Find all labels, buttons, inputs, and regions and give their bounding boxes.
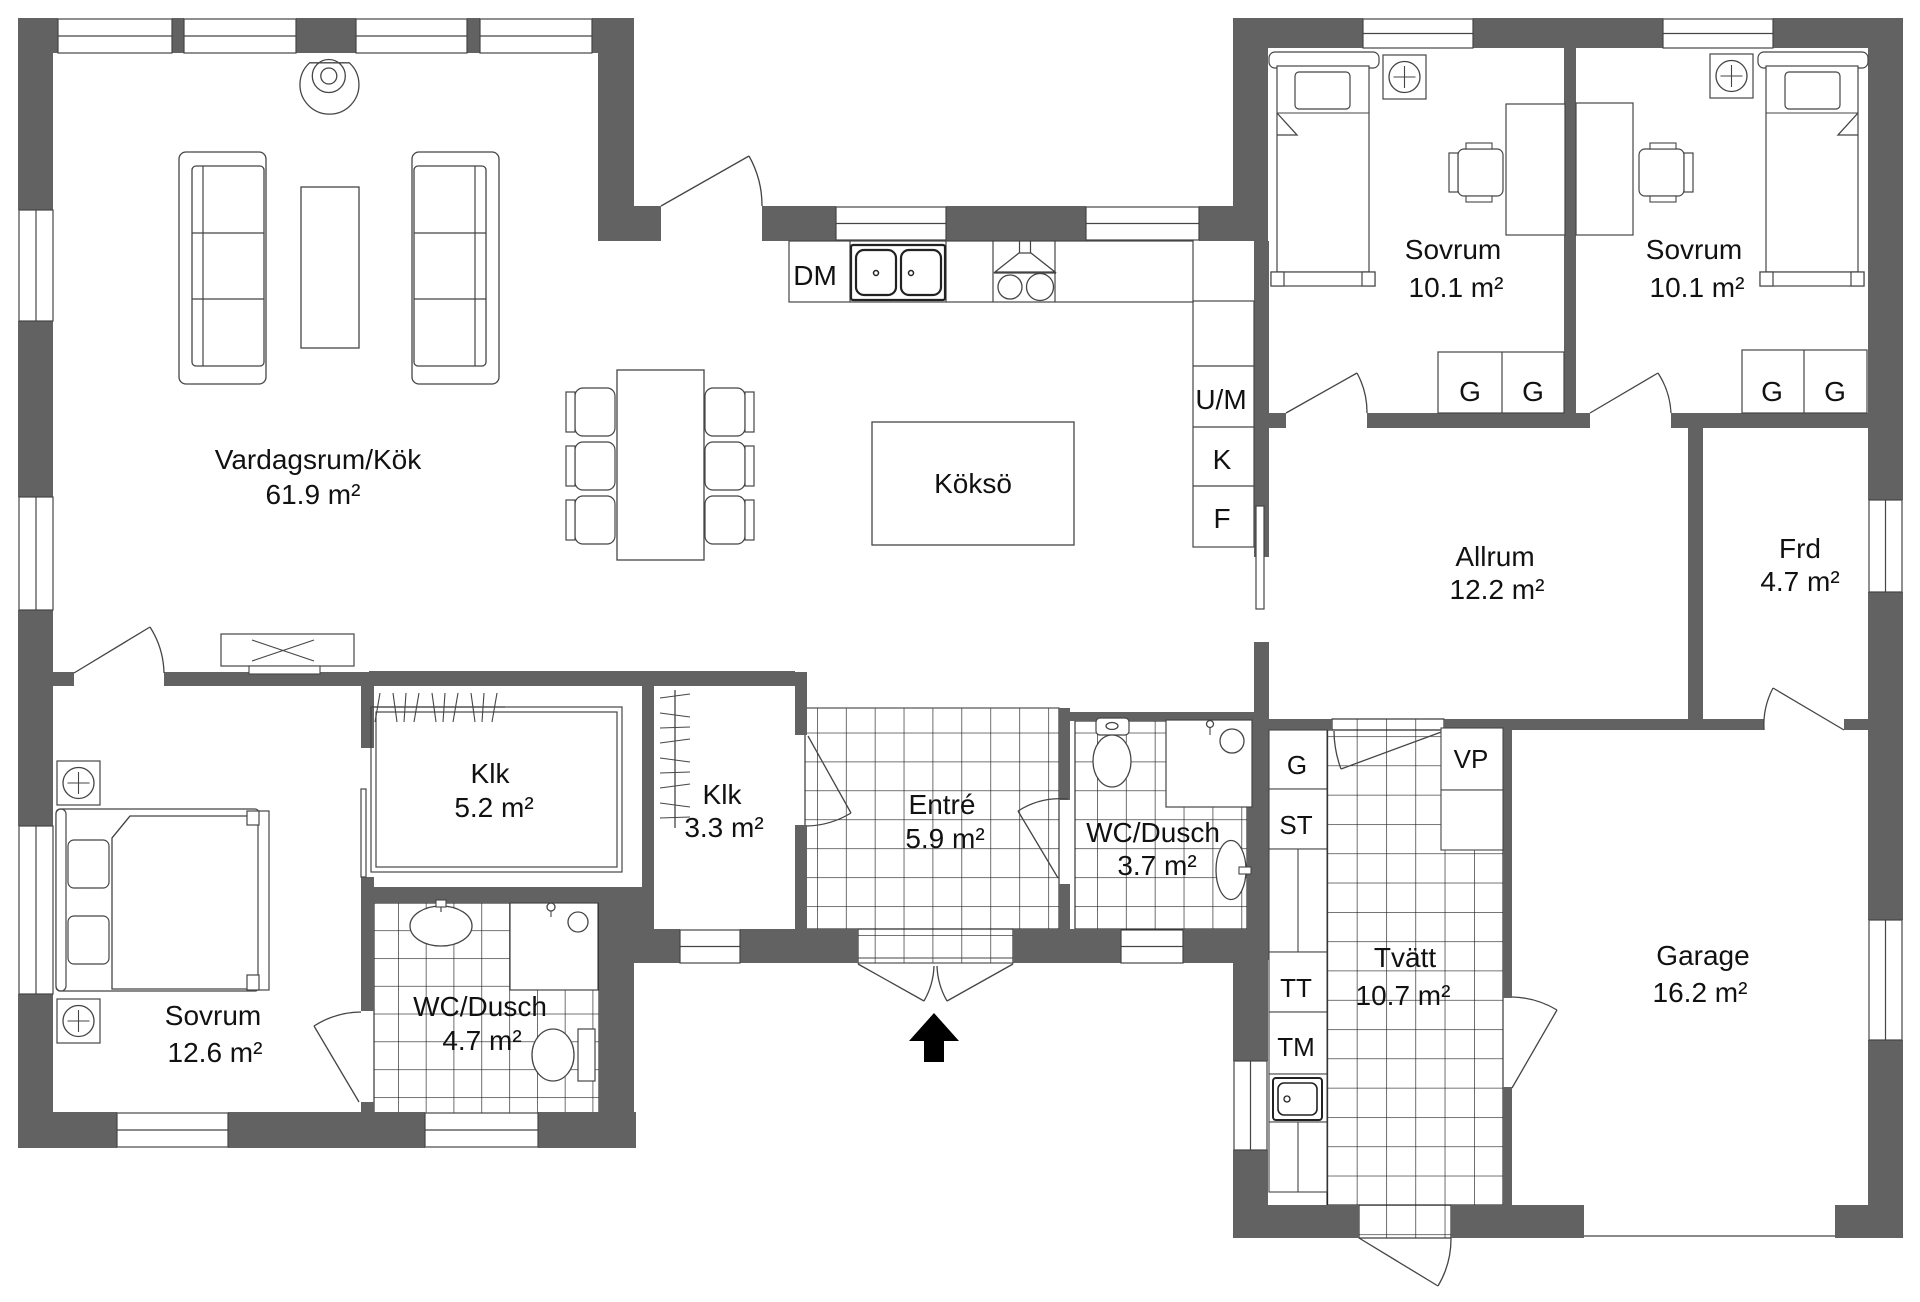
svg-text:Klk: Klk <box>703 779 743 810</box>
svg-text:WC/Dusch: WC/Dusch <box>1086 817 1220 848</box>
svg-text:12.2 m²: 12.2 m² <box>1450 574 1545 605</box>
svg-text:Vardagsrum/Kök: Vardagsrum/Kök <box>215 444 422 475</box>
svg-text:5.2 m²: 5.2 m² <box>454 792 533 823</box>
svg-text:ST: ST <box>1279 810 1312 840</box>
svg-text:G: G <box>1522 376 1544 407</box>
svg-text:G: G <box>1459 376 1481 407</box>
svg-text:10.1 m²: 10.1 m² <box>1409 272 1504 303</box>
svg-text:3.7 m²: 3.7 m² <box>1117 850 1196 881</box>
svg-text:4.7 m²: 4.7 m² <box>1760 566 1839 597</box>
svg-text:VP: VP <box>1454 744 1489 774</box>
svg-text:DM: DM <box>793 260 837 291</box>
svg-text:5.9 m²: 5.9 m² <box>905 823 984 854</box>
svg-text:Entré: Entré <box>909 789 976 820</box>
svg-text:G: G <box>1287 750 1307 780</box>
svg-text:Köksö: Köksö <box>934 468 1012 499</box>
svg-text:10.1 m²: 10.1 m² <box>1650 272 1745 303</box>
svg-text:F: F <box>1213 503 1230 534</box>
svg-text:10.7 m²: 10.7 m² <box>1356 980 1451 1011</box>
svg-text:61.9 m²: 61.9 m² <box>266 479 361 510</box>
svg-text:Sovrum: Sovrum <box>165 1000 261 1031</box>
svg-text:G: G <box>1824 376 1846 407</box>
svg-text:Garage: Garage <box>1656 940 1749 971</box>
svg-text:Klk: Klk <box>471 758 511 789</box>
svg-text:K: K <box>1213 444 1232 475</box>
svg-text:G: G <box>1761 376 1783 407</box>
svg-text:4.7 m²: 4.7 m² <box>442 1025 521 1056</box>
svg-text:Frd: Frd <box>1779 533 1821 564</box>
svg-text:Allrum: Allrum <box>1455 541 1534 572</box>
svg-text:TM: TM <box>1277 1032 1315 1062</box>
svg-text:12.6 m²: 12.6 m² <box>168 1037 263 1068</box>
svg-text:Sovrum: Sovrum <box>1405 234 1501 265</box>
svg-text:TT: TT <box>1280 973 1312 1003</box>
svg-text:Sovrum: Sovrum <box>1646 234 1742 265</box>
svg-text:Tvätt: Tvätt <box>1374 942 1436 973</box>
svg-text:U/M: U/M <box>1195 384 1246 415</box>
svg-text:16.2 m²: 16.2 m² <box>1653 977 1748 1008</box>
svg-text:3.3 m²: 3.3 m² <box>684 812 763 843</box>
svg-text:WC/Dusch: WC/Dusch <box>413 991 547 1022</box>
